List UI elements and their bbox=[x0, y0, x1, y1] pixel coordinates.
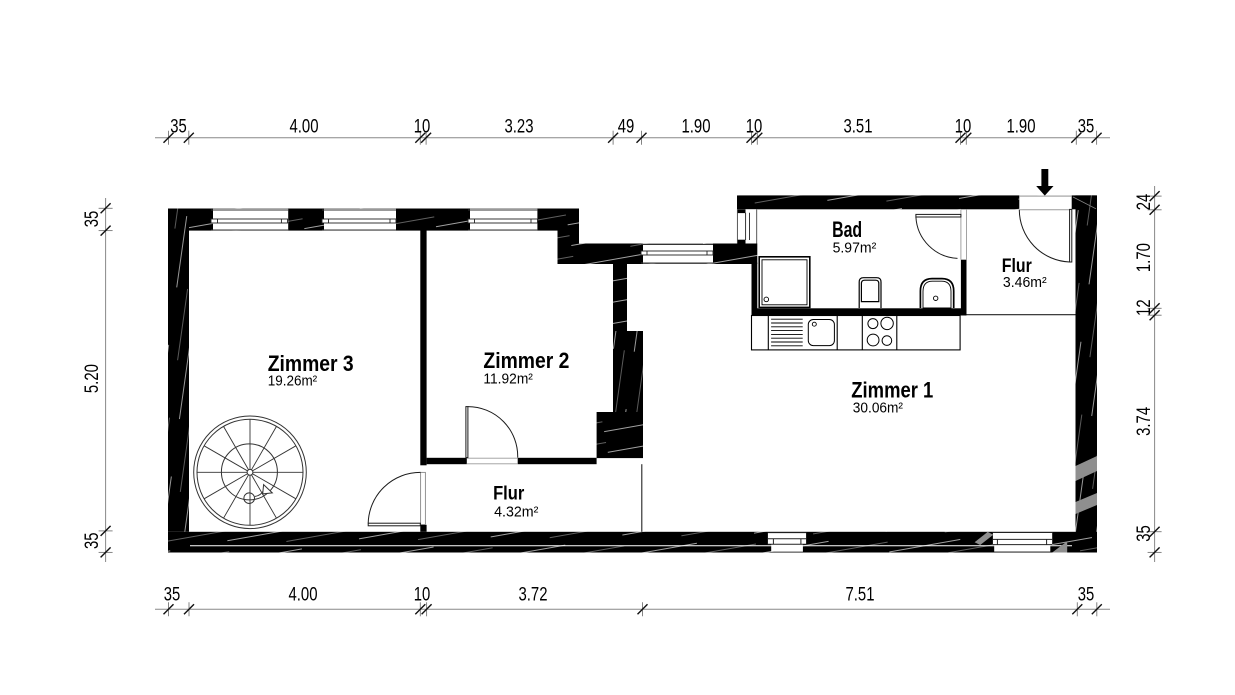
svg-text:12: 12 bbox=[1133, 299, 1155, 316]
svg-text:1.90: 1.90 bbox=[682, 116, 711, 138]
svg-text:24: 24 bbox=[1133, 194, 1155, 211]
svg-text:3.23: 3.23 bbox=[505, 116, 534, 138]
svg-text:Zimmer 2: Zimmer 2 bbox=[483, 348, 569, 373]
svg-text:19.26m²: 19.26m² bbox=[268, 373, 318, 389]
svg-text:4.00: 4.00 bbox=[290, 116, 319, 138]
svg-text:Flur: Flur bbox=[1002, 256, 1033, 277]
svg-text:5.97m²: 5.97m² bbox=[833, 240, 877, 256]
svg-text:4.32m²: 4.32m² bbox=[494, 505, 538, 521]
svg-text:35: 35 bbox=[1133, 525, 1155, 542]
svg-text:49: 49 bbox=[618, 116, 635, 138]
svg-text:1.90: 1.90 bbox=[1007, 116, 1036, 138]
svg-text:Flur: Flur bbox=[493, 484, 525, 505]
svg-text:35: 35 bbox=[1078, 584, 1095, 606]
svg-text:35: 35 bbox=[81, 211, 103, 228]
svg-text:35: 35 bbox=[170, 116, 187, 138]
svg-text:5.20: 5.20 bbox=[81, 364, 103, 393]
svg-text:Zimmer 1: Zimmer 1 bbox=[851, 378, 933, 403]
svg-text:10: 10 bbox=[746, 116, 763, 138]
svg-text:30.06m²: 30.06m² bbox=[853, 401, 903, 417]
svg-text:35: 35 bbox=[81, 532, 103, 549]
svg-text:3.72: 3.72 bbox=[519, 584, 548, 606]
svg-text:1.70: 1.70 bbox=[1133, 243, 1155, 272]
svg-text:35: 35 bbox=[1078, 116, 1095, 138]
svg-text:7.51: 7.51 bbox=[846, 584, 875, 606]
svg-text:3.51: 3.51 bbox=[844, 116, 873, 138]
svg-text:11.92m²: 11.92m² bbox=[483, 372, 533, 388]
svg-text:10: 10 bbox=[414, 116, 431, 138]
svg-text:10: 10 bbox=[414, 584, 431, 606]
svg-text:3.46m²: 3.46m² bbox=[1003, 275, 1047, 291]
svg-text:3.74: 3.74 bbox=[1133, 407, 1155, 436]
svg-text:10: 10 bbox=[955, 116, 972, 138]
svg-text:4.00: 4.00 bbox=[289, 584, 318, 606]
svg-text:Zimmer 3: Zimmer 3 bbox=[268, 351, 354, 376]
svg-text:Bad: Bad bbox=[832, 217, 862, 242]
svg-text:35: 35 bbox=[164, 584, 181, 606]
